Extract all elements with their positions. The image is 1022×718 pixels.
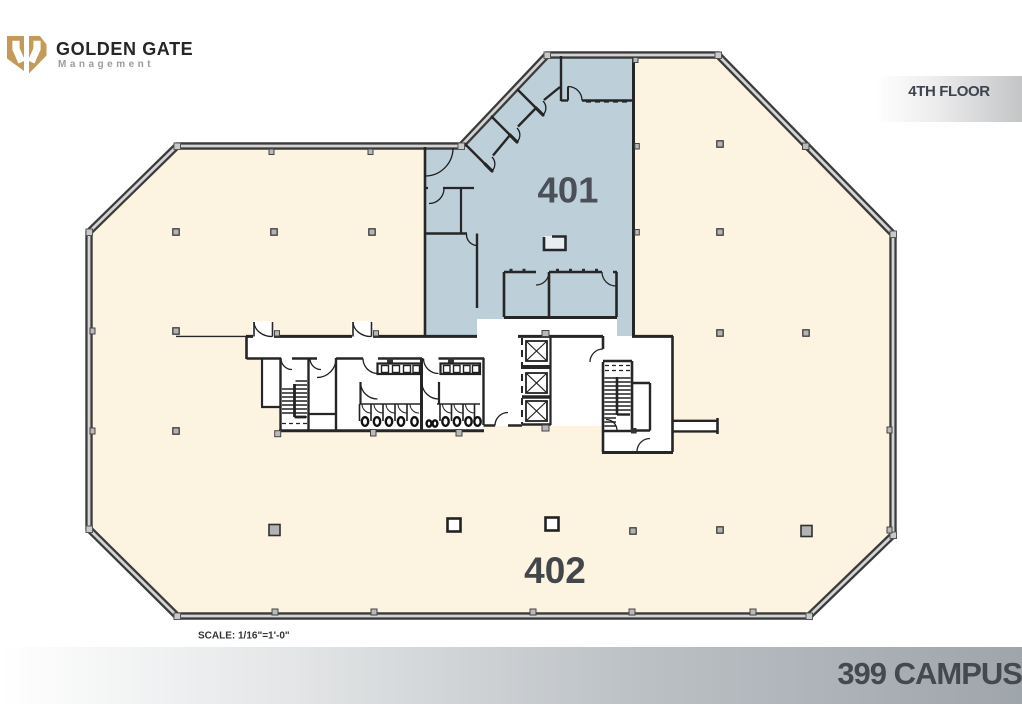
svg-text:402: 402 bbox=[524, 550, 586, 591]
svg-text:SCALE: 1/16"=1'-0": SCALE: 1/16"=1'-0" bbox=[198, 631, 290, 642]
svg-text:401: 401 bbox=[538, 170, 599, 211]
